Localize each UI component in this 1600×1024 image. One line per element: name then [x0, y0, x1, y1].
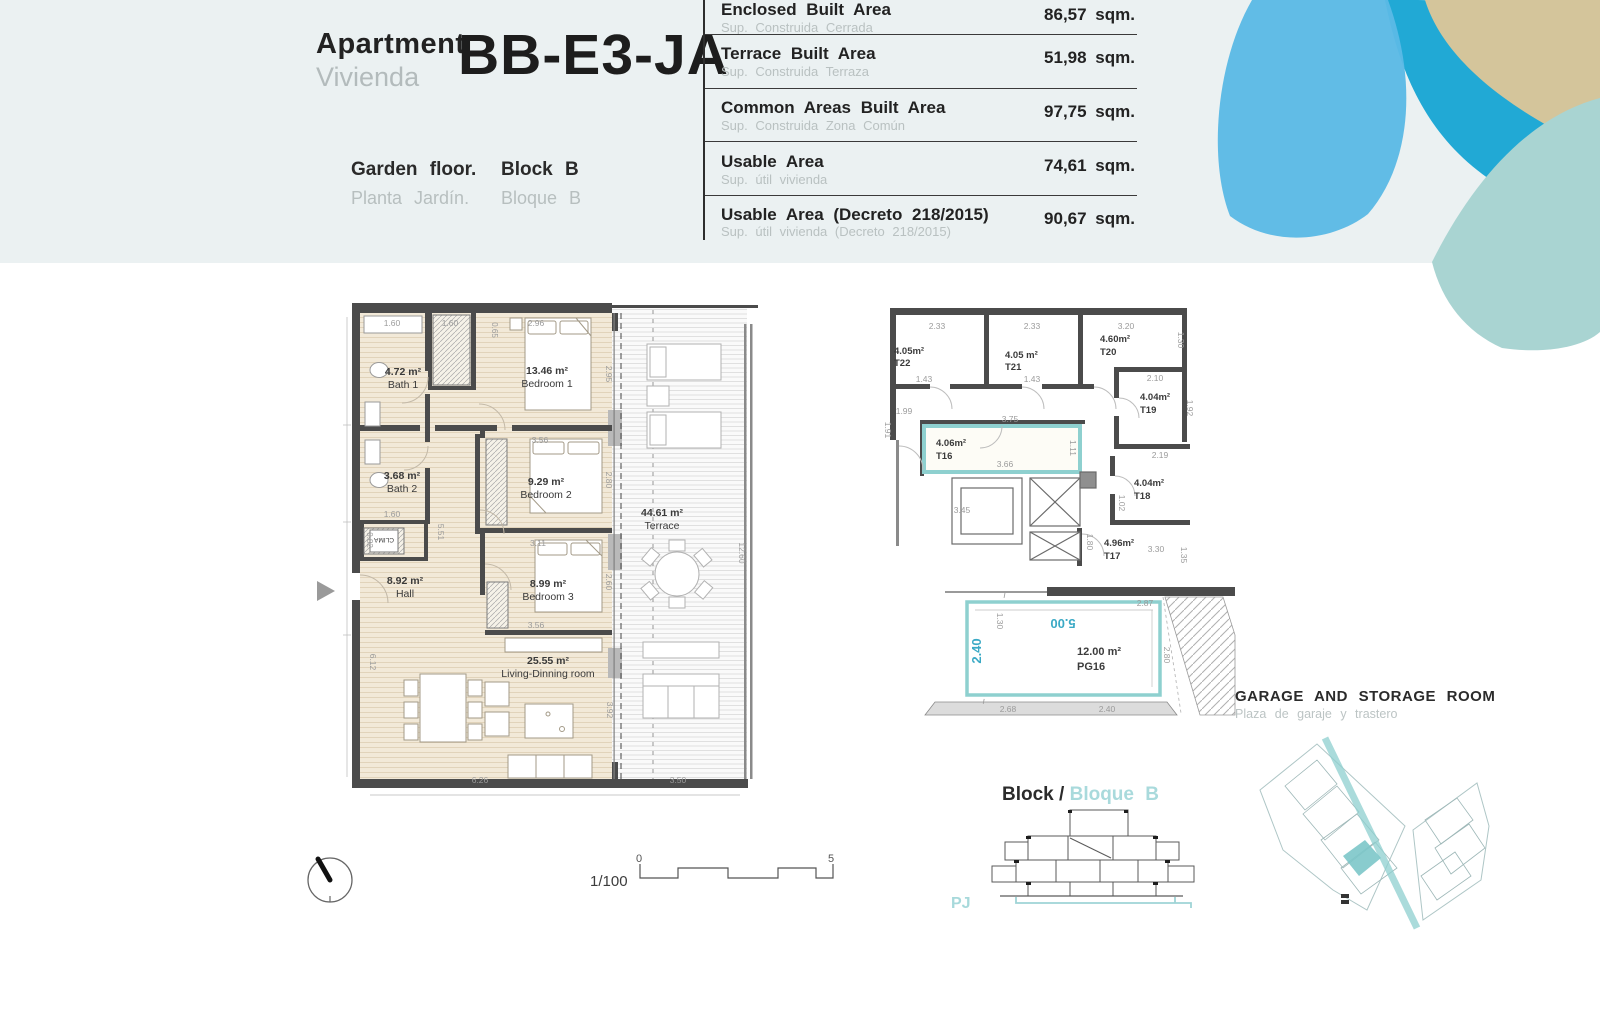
table-row: Common Areas Built Area Sup. Construida … [705, 88, 1137, 141]
table-row: Usable Area Sup. útil vivienda 74,61 sqm… [705, 141, 1137, 195]
title-es: Vivienda [316, 62, 419, 93]
north-compass-icon [298, 846, 362, 910]
dim-label: 2.95 [604, 366, 614, 383]
room-label: 25.55 m² [527, 655, 570, 667]
room-label: Terrace [644, 520, 679, 532]
block-label-es: Bloque B [501, 188, 581, 209]
dim-label: 2.80 [1162, 647, 1172, 664]
dim-label: 6.12 [368, 654, 378, 671]
parking-area-label: 12.00 m² [1077, 646, 1121, 658]
area-label-es: Sup. Construida Zona Común [721, 118, 905, 133]
storage-rooms-plan: 4.05m² T22 4.05 m² T21 4.60m² T20 4.04m²… [862, 296, 1197, 566]
area-value: 90,67 sqm. [1044, 209, 1135, 229]
room-label: 8.92 m² [387, 575, 424, 587]
storage-unit-label: T20 [1100, 347, 1116, 358]
dim-label: 0.82 [365, 532, 374, 548]
decorative-petals [1180, 0, 1600, 350]
dim-label: 1.92 [1185, 400, 1195, 417]
dim-label: 3.45 [954, 505, 971, 515]
dim-label: 3.20 [1118, 321, 1135, 331]
dim-label: 1.43 [916, 374, 933, 384]
dim-label: 3.50 [670, 775, 687, 785]
storage-unit-label: 4.05m² [894, 346, 924, 357]
table-row: Terrace Built Area Sup. Construida Terra… [705, 34, 1137, 87]
storage-unit-label: T21 [1005, 362, 1022, 373]
scale-end-label: 5 [828, 853, 834, 865]
room-label: Bath 2 [387, 483, 418, 495]
unit-code: BB-E3-JA [458, 22, 729, 88]
room-label: Bath 1 [388, 379, 419, 391]
dim-label: 1.60 [442, 318, 459, 328]
area-label-en: Common Areas Built Area [721, 98, 945, 118]
dim-label: 2.87 [1137, 598, 1154, 608]
row-divider [705, 195, 1137, 196]
storage-unit-label: 4.04m² [1140, 392, 1170, 403]
garden-floor-level-line [1016, 897, 1191, 908]
dim-label: 5.51 [436, 524, 446, 541]
petal-light-blue [1218, 0, 1407, 238]
garage-plan: 5.00 2.40 12.00 m² PG16 2.87 2.80 2.68 2… [905, 565, 1235, 720]
dim-label: 1.99 [896, 406, 913, 416]
room-label: 44.61 m² [641, 507, 684, 519]
dim-label: 1.60 [384, 318, 401, 328]
dim-label: 1.11 [1068, 440, 1078, 456]
dim-label: 2.68 [1000, 704, 1017, 714]
scale-start-label: 0 [636, 853, 642, 865]
area-label-es: Sup. útil vivienda (Decreto 218/2015) [721, 224, 951, 239]
title-en: Apartment [316, 28, 466, 61]
dim-label: 3.75 [1002, 414, 1019, 424]
room-label: 9.29 m² [528, 476, 565, 488]
area-label-es: Sup. útil vivienda [721, 172, 827, 187]
parking-dim-depth: 2.40 [969, 638, 984, 663]
floor-code-pj: PJ [951, 895, 971, 912]
area-label-es: Sup. Construida Terraza [721, 64, 869, 79]
dim-label: 6.26 [472, 775, 489, 785]
dim-label: 2.80 [604, 472, 614, 489]
garage-storage-subtitle: Plaza de garaje y trastero [1235, 707, 1397, 721]
area-label-en: Usable Area (Decreto 218/2015) [721, 205, 989, 225]
dim-label: 3.11 [530, 538, 546, 548]
scale-ratio-label: 1/100 [590, 873, 628, 890]
entrance-arrow-icon [314, 578, 338, 604]
area-label-en: Enclosed Built Area [721, 0, 891, 20]
dim-label: 1.43 [1024, 374, 1041, 384]
block-label-en: Block B [501, 159, 579, 181]
floor-label-en: Garden floor. [351, 159, 476, 181]
floor-label-es: Planta Jardín. [351, 188, 469, 209]
table-row: Enclosed Built Area Sup. Construida Cerr… [705, 0, 1137, 33]
area-value: 51,98 sqm. [1044, 48, 1135, 68]
row-divider [705, 34, 1137, 35]
dim-label: 2.33 [929, 321, 946, 331]
area-label-en: Terrace Built Area [721, 44, 876, 64]
dim-label: 2.10 [1147, 373, 1164, 383]
areas-table: Enclosed Built Area Sup. Construida Cerr… [703, 0, 1137, 242]
area-value: 86,57 sqm. [1044, 5, 1135, 25]
garage-storage-title: GARAGE AND STORAGE ROOM [1235, 688, 1495, 705]
dim-label: 3.56 [528, 620, 545, 630]
dim-label: 1.80 [1085, 534, 1095, 551]
row-divider [705, 88, 1137, 89]
storage-unit-label: T19 [1140, 405, 1156, 416]
dim-label: 1.91 [883, 422, 893, 439]
dim-label: 3.56 [532, 435, 549, 445]
dim-label: 3.66 [997, 459, 1014, 469]
parking-dim-width: 5.00 [1050, 616, 1075, 631]
room-label: Living-Dinning room [501, 668, 595, 680]
storage-unit-label: T16 [936, 451, 952, 462]
room-label: 13.46 m² [526, 365, 569, 377]
clima-label: CLIMA [373, 536, 394, 543]
area-value: 97,75 sqm. [1044, 102, 1135, 122]
dim-label: 1.30 [995, 613, 1005, 630]
area-label-es: Sup. Construida Cerrada [721, 20, 873, 35]
dim-label: 2.96 [528, 318, 545, 328]
room-label: 8.99 m² [530, 578, 567, 590]
dim-label: 2.19 [1152, 450, 1169, 460]
dim-label: 0.65 [490, 322, 499, 338]
dim-label: 2.33 [1024, 321, 1041, 331]
dim-label: 1.30 [1176, 332, 1186, 349]
apartment-floor-plan: 4.72 m² Bath 1 13.46 m² Bedroom 1 3.68 m… [340, 282, 780, 812]
area-value: 74,61 sqm. [1044, 156, 1135, 176]
dim-label: 1.02 [1117, 495, 1127, 512]
room-label: Hall [396, 588, 414, 600]
scale-bar: 1/100 0 5 [588, 848, 848, 900]
dim-label: 3.30 [1148, 544, 1165, 554]
room-label: 4.72 m² [385, 366, 422, 378]
scale-bar-line [640, 864, 833, 878]
storage-unit-label: 4.04m² [1134, 478, 1164, 489]
stairs-and-elevator [952, 472, 1096, 560]
area-label-en: Usable Area [721, 152, 824, 172]
site-plan [1245, 728, 1495, 933]
storage-unit-label: 4.96m² [1104, 538, 1134, 549]
storage-unit-label: 4.60m² [1100, 334, 1130, 345]
room-label: 3.68 m² [384, 470, 421, 482]
storage-unit-label: T22 [894, 358, 910, 369]
dim-label: 2.60 [604, 574, 614, 591]
dim-label: 3.92 [605, 702, 615, 719]
parking-code-label: PG16 [1077, 661, 1105, 673]
storage-unit-label: 4.06m² [936, 438, 966, 449]
room-label: Bedroom 1 [521, 378, 573, 390]
storage-unit-label: T18 [1134, 491, 1150, 502]
dim-label: 1.35 [1179, 547, 1189, 564]
block-section-diagram: PJ [935, 800, 1200, 925]
room-label: Bedroom 3 [522, 591, 574, 603]
table-row: Usable Area (Decreto 218/2015) Sup. útil… [705, 195, 1137, 245]
dim-label: 1.60 [384, 509, 401, 519]
dim-label: 12.60 [737, 542, 747, 564]
storage-unit-label: 4.05 m² [1005, 350, 1038, 361]
storage-unit-label: T17 [1104, 551, 1120, 562]
dim-label: 2.40 [1099, 704, 1116, 714]
room-label: Bedroom 2 [520, 489, 572, 501]
row-divider [705, 141, 1137, 142]
